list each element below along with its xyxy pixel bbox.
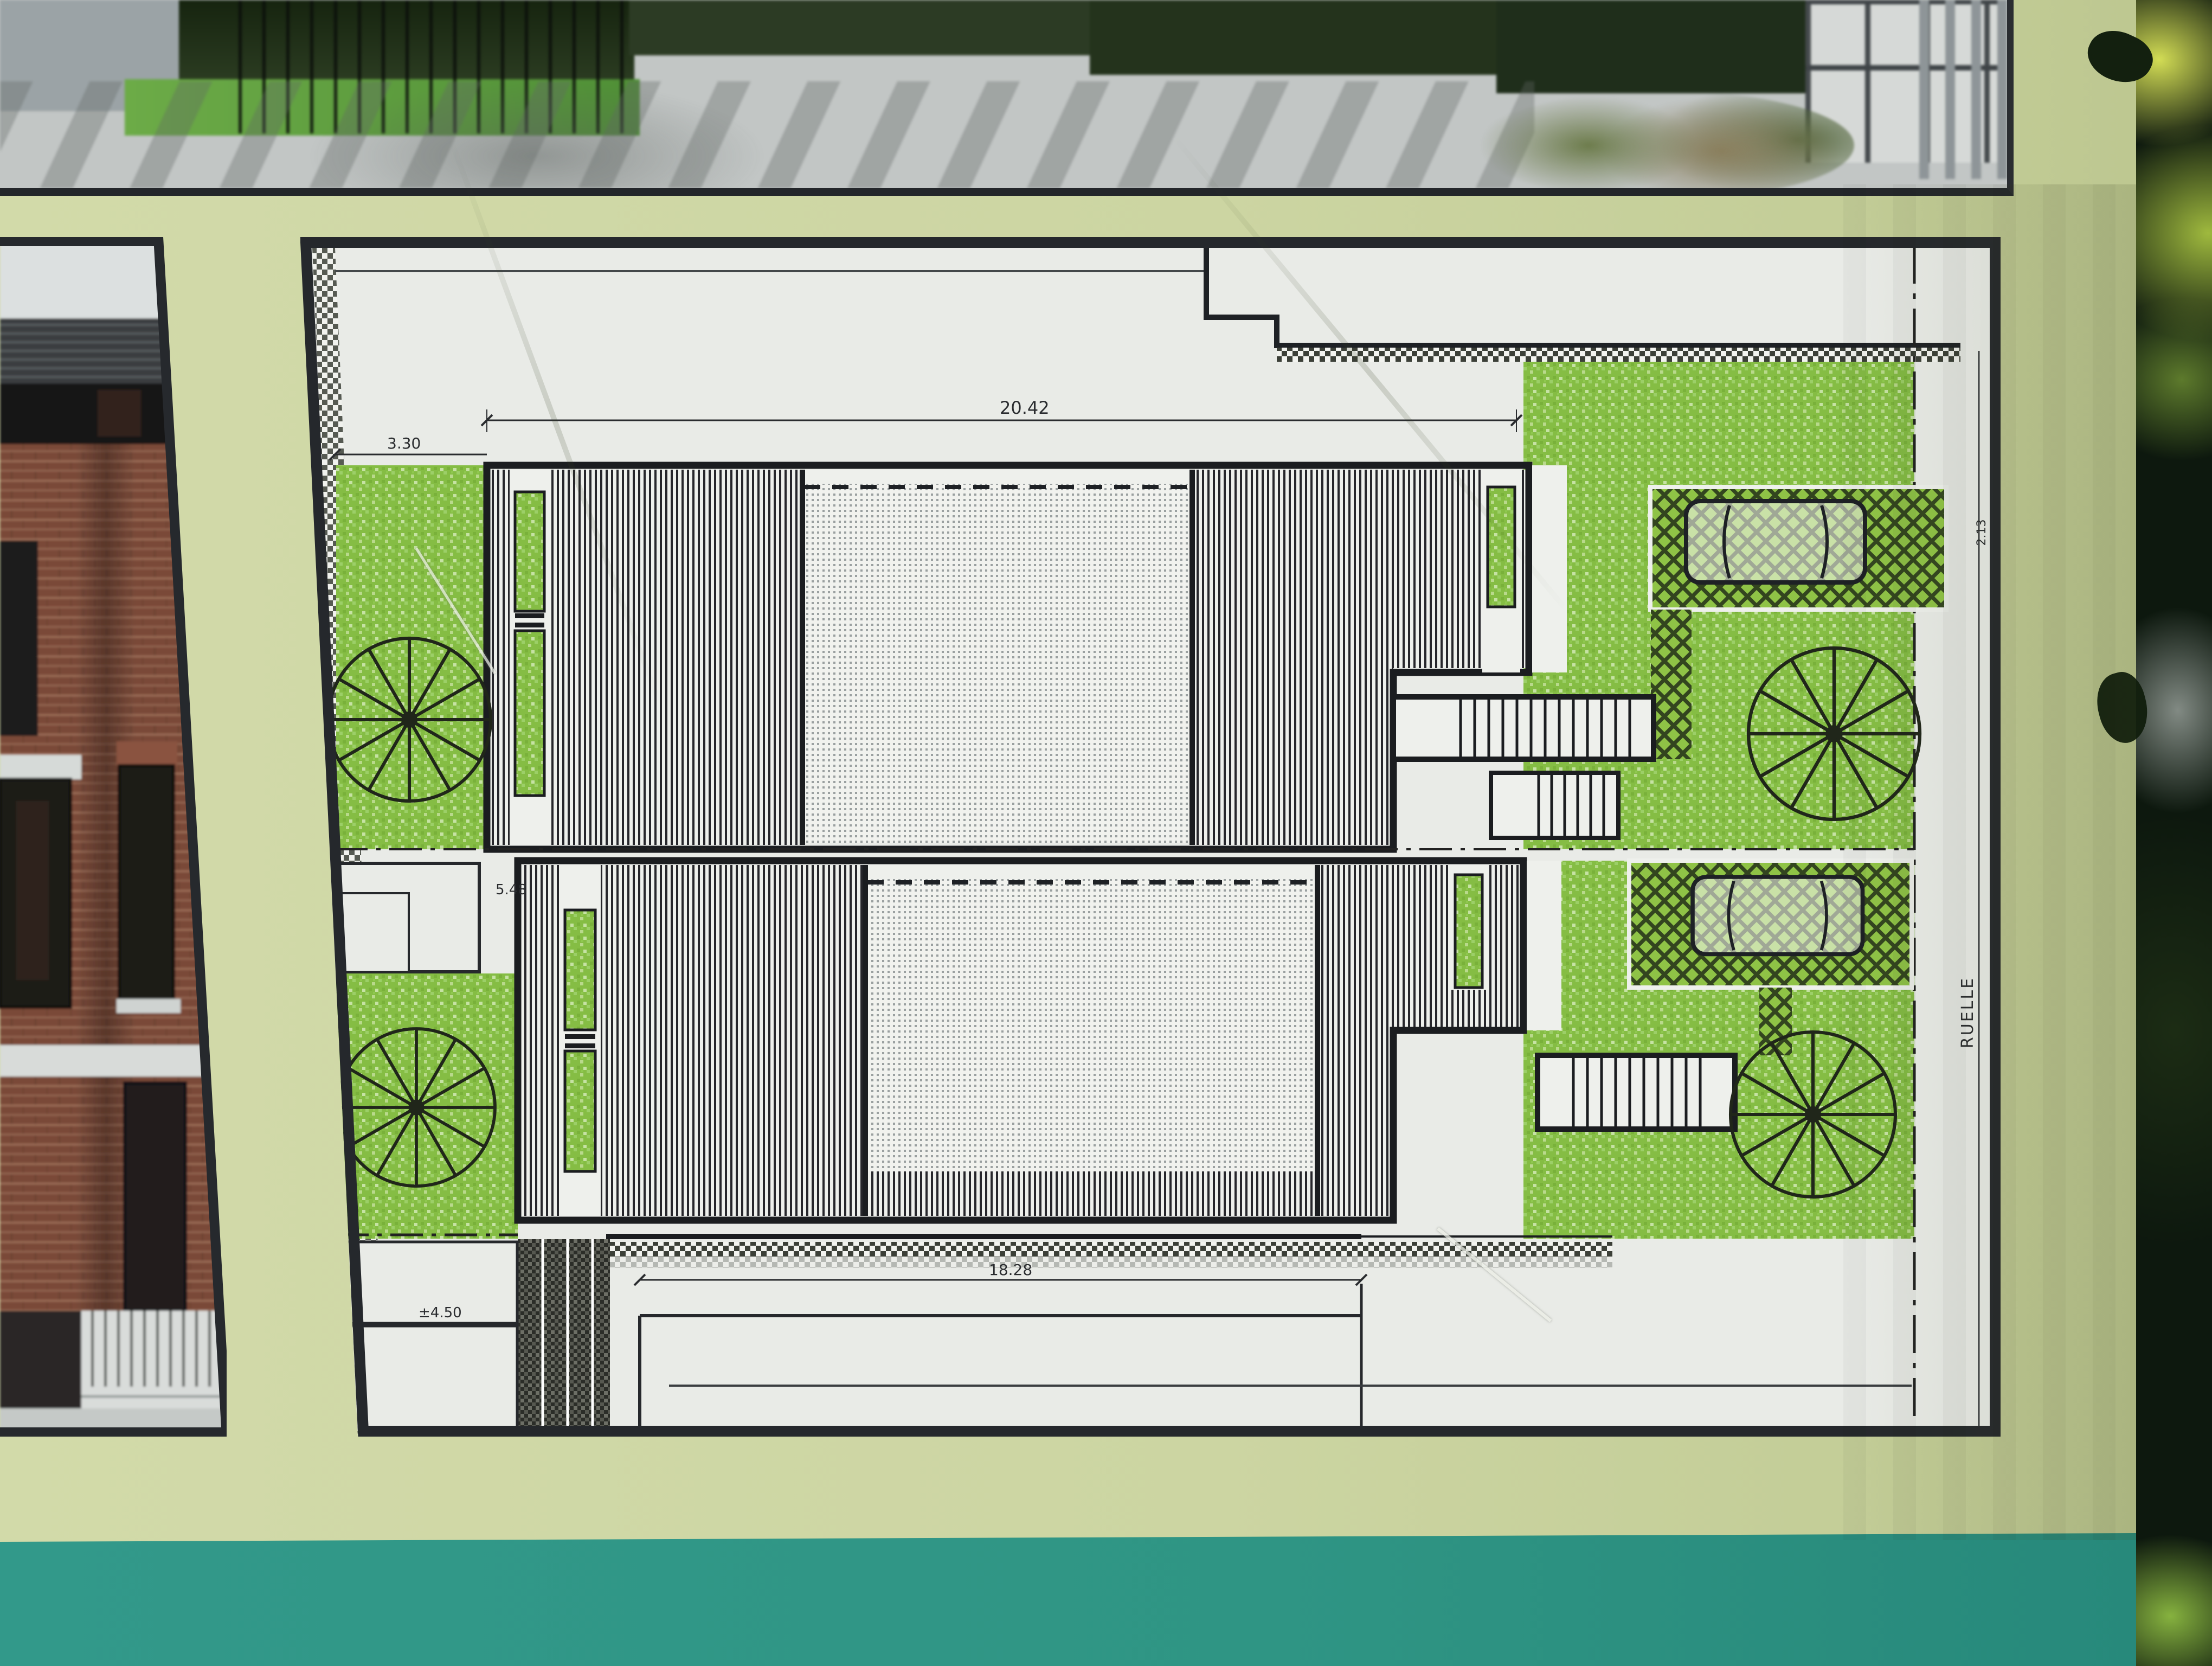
board-shading [1843, 184, 2136, 1540]
unit-b-east-wing-lower [1317, 1030, 1393, 1216]
entry-door [125, 1083, 185, 1311]
window-sill [117, 999, 181, 1013]
planter [515, 492, 544, 611]
stair-rear [1538, 1055, 1735, 1129]
rear-walk-hatch-fade [610, 1257, 1612, 1268]
unit-b-courtyard [867, 879, 1317, 1171]
unit-b-east-wing [1317, 865, 1523, 1030]
shrubs [1475, 91, 1854, 196]
porch-posts [1919, 0, 2007, 179]
shed-hatch [518, 1239, 610, 1432]
porch-railing [81, 1311, 227, 1387]
side-porch-step [338, 893, 409, 972]
car-icon [1693, 877, 1863, 954]
planter [565, 910, 595, 1030]
planter [1455, 875, 1482, 988]
foliage [2136, 0, 2212, 1666]
dim-top-label: 20.42 [1000, 398, 1050, 418]
planter-divider [565, 1043, 595, 1048]
ribbed-siding [0, 318, 227, 383]
balcony-slab [0, 1045, 227, 1077]
side-walkway [1527, 861, 1561, 1030]
side-walkway [1532, 465, 1567, 672]
brick-building-rendering [0, 237, 227, 1437]
terrace-edge [804, 470, 1192, 484]
porch-steps [81, 1387, 227, 1411]
rear-level-label: ±4.50 [419, 1305, 462, 1321]
fascia [0, 237, 227, 318]
unit-a-courtyard [804, 484, 1192, 843]
planter-divider [515, 613, 544, 618]
sidewalk-shadows [0, 81, 1534, 188]
window-sill [0, 755, 81, 779]
planter-divider [515, 623, 544, 627]
trees [1090, 0, 1507, 75]
window-glint [16, 801, 49, 980]
left-photo-panel [0, 237, 227, 1437]
tree-icon [328, 638, 491, 801]
trees [1496, 0, 1822, 93]
lattice-walk-upper [1651, 610, 1692, 759]
unit-b-south-band [867, 1171, 1317, 1216]
car-icon [1686, 501, 1865, 582]
trees [629, 0, 1095, 55]
lattice-walk-lower [1759, 988, 1792, 1055]
window [0, 541, 38, 736]
teal-band [0, 1533, 2136, 1666]
terrace-edge [867, 865, 1317, 879]
dim-rear-label: 18.28 [989, 1261, 1032, 1279]
planter [565, 1051, 595, 1171]
dim-unit-label: 5.48 [496, 882, 527, 898]
planter-divider [565, 1034, 595, 1039]
planter [515, 631, 544, 796]
top-rendering-strip [0, 0, 2014, 196]
window-glint [98, 390, 141, 437]
dim-left-label: 3.30 [387, 434, 421, 452]
stair-lower [1491, 773, 1618, 838]
soldier-course [117, 741, 177, 766]
unit-a-east-wing-lower [1192, 668, 1393, 845]
street-rendering [0, 0, 2007, 188]
tree-icon [338, 1029, 495, 1186]
sign-board-photo: 20.42 3.30 5.48 18.28 ±4.50 RUELLE 2.13 [0, 0, 2212, 1666]
window [119, 766, 173, 999]
